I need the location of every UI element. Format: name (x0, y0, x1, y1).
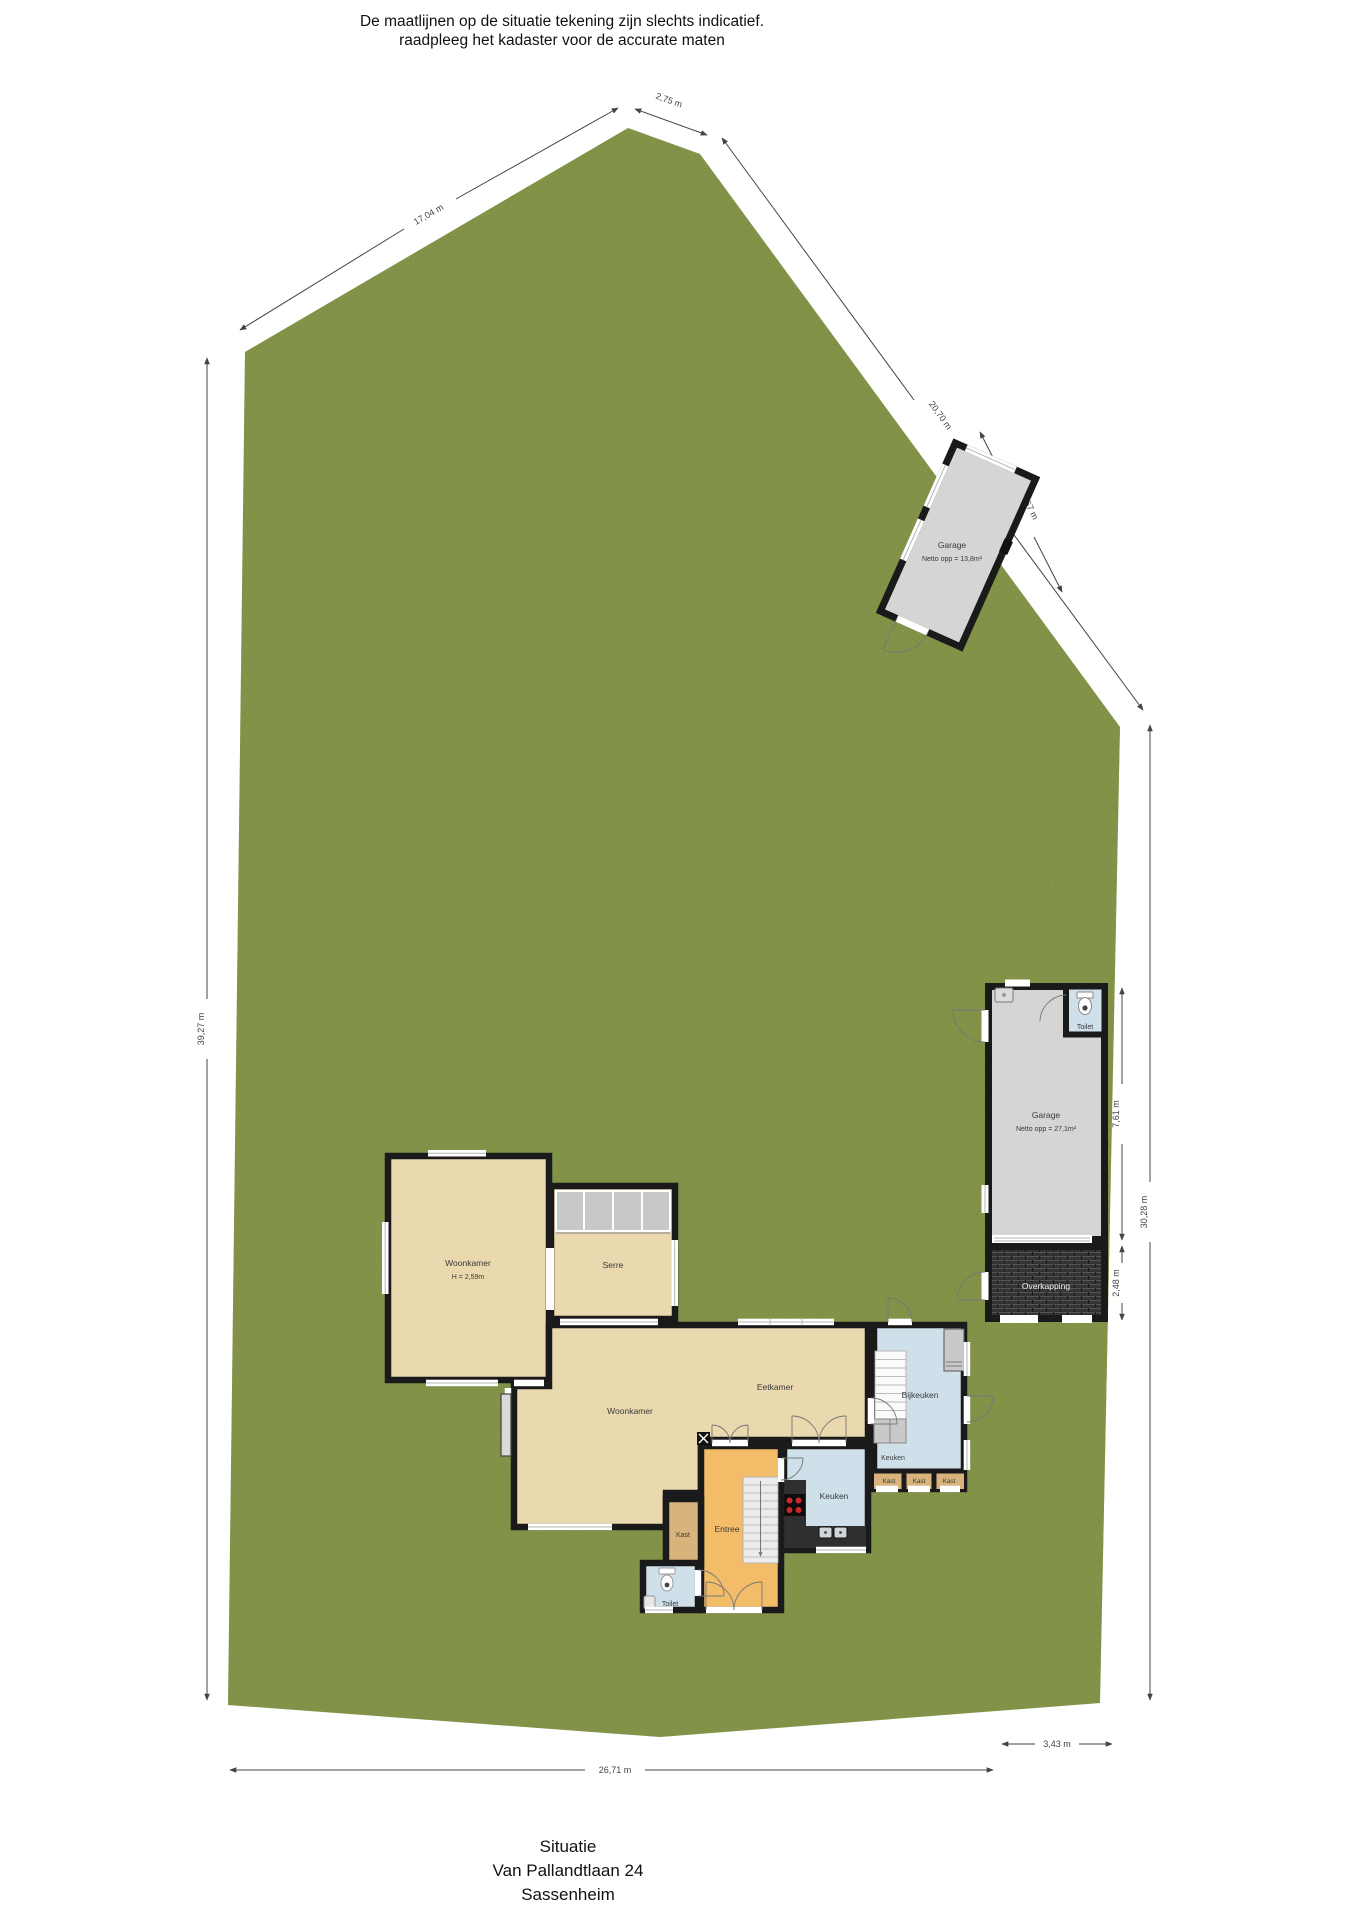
dimension-label-bottom-right-edge: 3,43 m (1043, 1739, 1071, 1749)
label-kast3: Kast (943, 1478, 956, 1485)
label-woonkamer1: Woonkamer (445, 1258, 491, 1268)
drawing-title: Situatie (540, 1837, 597, 1856)
serre-glazing (556, 1191, 670, 1233)
dimension-label-apex-edge: 2,75 m (654, 91, 683, 110)
entree-stairs (743, 1477, 778, 1563)
bay-window (501, 1394, 511, 1456)
dimension-bottom-right-edge: 3,43 m (1002, 1739, 1112, 1749)
overkapping-label: Overkapping (1022, 1281, 1070, 1291)
dimension-label-right-diagonal: 20,70 m (927, 399, 954, 431)
dimension-right-edge: 30,28 m (1139, 725, 1150, 1700)
dimension-label-overkapping-depth: 2,48 m (1111, 1269, 1121, 1297)
disclaimer-line2: raadpleeg het kadaster voor de accurate … (399, 32, 725, 49)
entry-marker-icon (697, 1432, 710, 1445)
disclaimer-text: De maatlijnen op de situatie tekening zi… (360, 13, 764, 49)
garage-door-band (992, 1235, 1092, 1244)
label-bijkeuken: Bijkeuken (902, 1390, 939, 1400)
dimension-label-top-edge: 17,04 m (412, 202, 445, 227)
label-keuken1: Keuken (881, 1455, 905, 1462)
dimension-label-left-edge: 39,27 m (196, 1013, 206, 1046)
label-keuken2: Keuken (820, 1491, 849, 1501)
dimension-left-edge: 39,27 m (196, 358, 207, 1700)
room-woonkamer1 (388, 1156, 549, 1380)
detached-garage-area-label: Netto opp = 13,8m² (922, 556, 983, 563)
label-entree: Entree (714, 1524, 739, 1534)
label-eetkamer: Eetkamer (757, 1382, 794, 1392)
label-woonkamer1-height: H = 2,59m (452, 1274, 485, 1281)
drawing-city: Sassenheim (521, 1885, 615, 1904)
situatie-floorplan: De maatlijnen op de situatie tekening zi… (0, 0, 1358, 1920)
dimension-apex-edge: 2,75 m (635, 91, 707, 135)
label-kast2: Kast (913, 1478, 926, 1485)
detached-garage-label: Garage (938, 540, 967, 550)
dimension-bottom-edge: 26,71 m (230, 1765, 993, 1775)
garage-toilet-icon (1077, 992, 1093, 1015)
label-kast4: Kast (676, 1532, 690, 1539)
attached-garage-label: Garage (1032, 1110, 1061, 1120)
disclaimer-line1: De maatlijnen op de situatie tekening zi… (360, 13, 764, 30)
label-serre: Serre (603, 1260, 624, 1270)
dimension-label-bottom-edge: 26,71 m (599, 1765, 632, 1775)
dimension-label-garage-depth: 7,61 m (1111, 1100, 1121, 1128)
bijkeuken-stairs (875, 1351, 906, 1419)
dimension-label-right-edge: 30,28 m (1139, 1196, 1149, 1229)
attached-garage-area-label: Netto opp = 27,1m² (1016, 1126, 1077, 1133)
label-toilet: Toilet (662, 1601, 678, 1608)
stove-icon (784, 1494, 805, 1516)
garage-toilet-label: Toilet (1077, 1024, 1093, 1031)
title-block: Situatie Van Pallandtlaan 24 Sassenheim (493, 1837, 644, 1904)
keuken1-counter (874, 1419, 906, 1443)
label-kast1: Kast (883, 1478, 896, 1485)
dimension-overkapping-depth: 2,48 m (1111, 1246, 1122, 1320)
label-woonkamer2: Woonkamer (607, 1406, 653, 1416)
garage-sink-icon (995, 988, 1013, 1002)
drawing-address: Van Pallandtlaan 24 (493, 1861, 644, 1880)
bijkeuken-appliance-icon (944, 1329, 964, 1371)
